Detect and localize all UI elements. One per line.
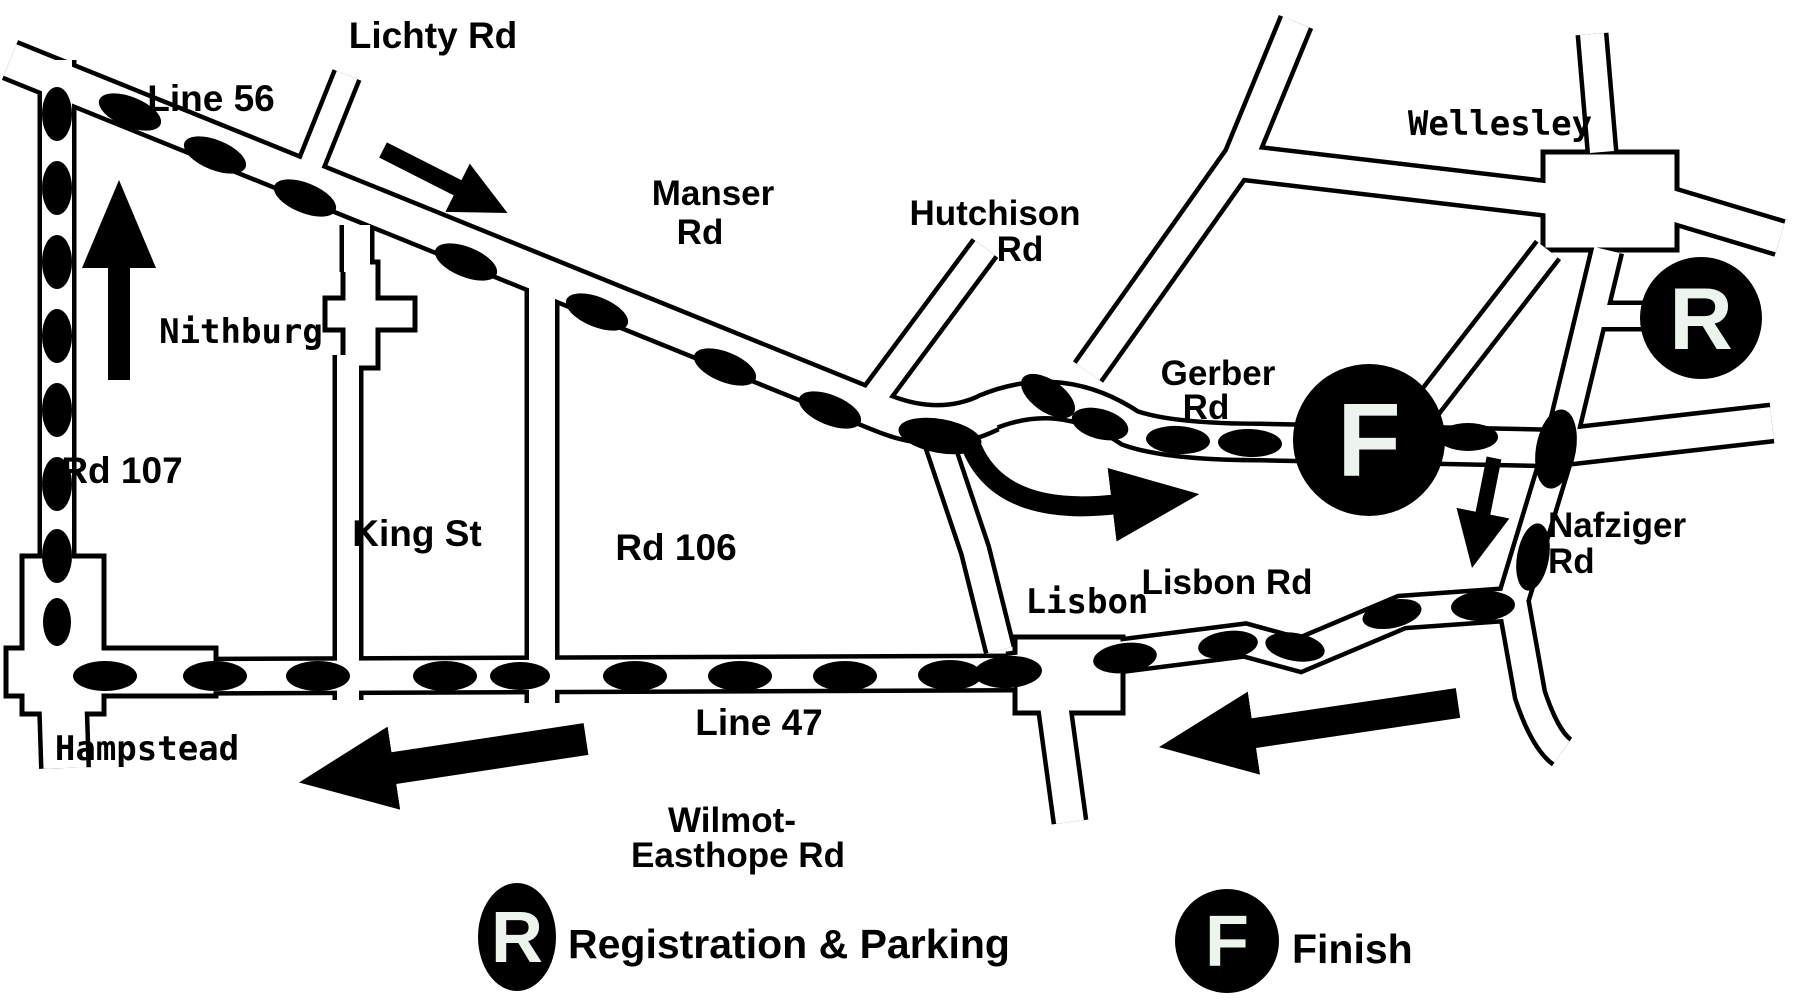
town-marker-wellesley [1543, 152, 1677, 250]
label-wilmot-line1: Wilmot- [668, 801, 796, 840]
label-lichty-rd: Lichty Rd [349, 15, 518, 56]
legend-finish-symbol: F [1205, 902, 1249, 982]
label-town-hampstead: Hampstead [55, 729, 239, 769]
route-marker-oval [1438, 423, 1498, 451]
route-marker-oval [42, 235, 72, 289]
route-marker-oval [708, 661, 772, 691]
map-canvas: F R Line 56 Lichty Rd Manser Rd Hutchiso… [0, 0, 1800, 1000]
legend-registration-label: Registration & Parking [568, 921, 1010, 967]
route-marker-oval [183, 661, 247, 691]
route-marker-oval [43, 598, 71, 646]
route-marker-oval [286, 661, 350, 691]
route-marker-oval [413, 661, 477, 691]
label-rd-107: Rd 107 [61, 450, 182, 491]
route-marker-oval [42, 529, 72, 583]
label-gerber-line2: Rd [1183, 388, 1230, 427]
route-marker-oval [42, 161, 72, 215]
label-town-wellesley: Wellesley [1408, 104, 1592, 144]
route-marker-oval [73, 661, 137, 691]
legend-finish-label: Finish [1292, 926, 1413, 972]
label-town-lisbon: Lisbon [1026, 582, 1149, 622]
route-marker-oval [490, 662, 550, 690]
label-king-st: King St [352, 513, 481, 554]
label-lisbon-rd: Lisbon Rd [1141, 563, 1312, 602]
label-manser-line2: Rd [677, 213, 724, 252]
route-marker-oval [42, 383, 72, 437]
route-marker-oval [42, 309, 72, 363]
road-wellesley-north [1592, 34, 1602, 152]
label-nafziger-line1: Nafziger [1548, 506, 1686, 545]
road-wilmot-easthope [1052, 690, 1070, 822]
route-marker-oval [918, 660, 982, 690]
label-manser-line1: Manser [652, 174, 775, 213]
label-hutchison-line2: Rd [997, 230, 1044, 269]
route-marker-oval [42, 87, 72, 141]
label-rd-106: Rd 106 [615, 527, 736, 568]
legend-registration-symbol: R [491, 898, 543, 978]
route-marker-oval [813, 661, 877, 691]
route-marker-oval [603, 661, 667, 691]
finish-marker-letter: F [1337, 383, 1401, 499]
label-line-47: Line 47 [695, 702, 823, 743]
label-wilmot-line2: Easthope Rd [631, 836, 845, 875]
route-map: F R Line 56 Lichty Rd Manser Rd Hutchiso… [0, 0, 1800, 1000]
label-hutchison-line1: Hutchison [909, 194, 1080, 233]
label-line-56: Line 56 [147, 78, 275, 119]
registration-marker-letter: R [1669, 269, 1733, 368]
label-nafziger-line2: Rd [1548, 542, 1595, 581]
label-town-nithburg: Nithburg [159, 312, 323, 352]
